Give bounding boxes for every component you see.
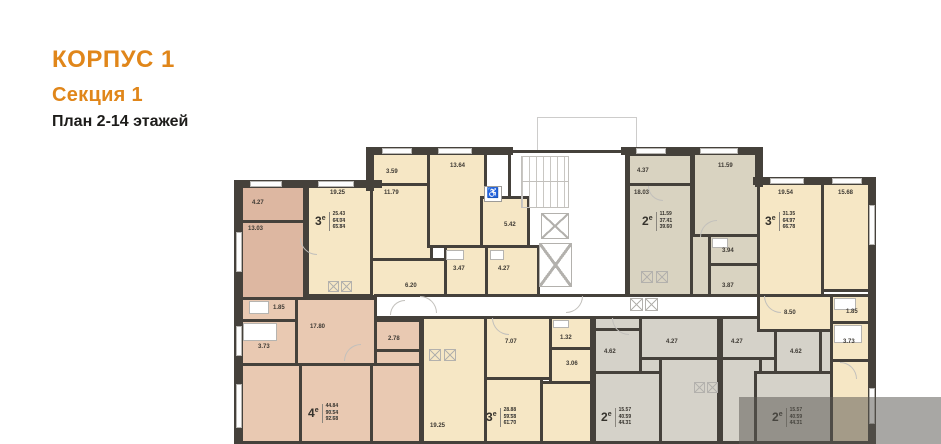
- apartment-region-2e-bottom-left[interactable]: [593, 316, 720, 444]
- apartment-region-3e-bottom[interactable]: [421, 294, 593, 444]
- apartment-region-3e-top-left[interactable]: [304, 148, 540, 297]
- vent-shaft-icon: [630, 298, 643, 311]
- floor-plan: ♿ 4.27 13.03 1.85 3.73 17.80 2.78 19.25 …: [0, 0, 941, 444]
- selection-overlay: [739, 397, 941, 444]
- vent-shaft-icon: [645, 298, 658, 311]
- apartment-region-2e-top[interactable]: [625, 148, 760, 297]
- elevator-shaft: [539, 243, 572, 287]
- elevator-shaft: [541, 213, 569, 239]
